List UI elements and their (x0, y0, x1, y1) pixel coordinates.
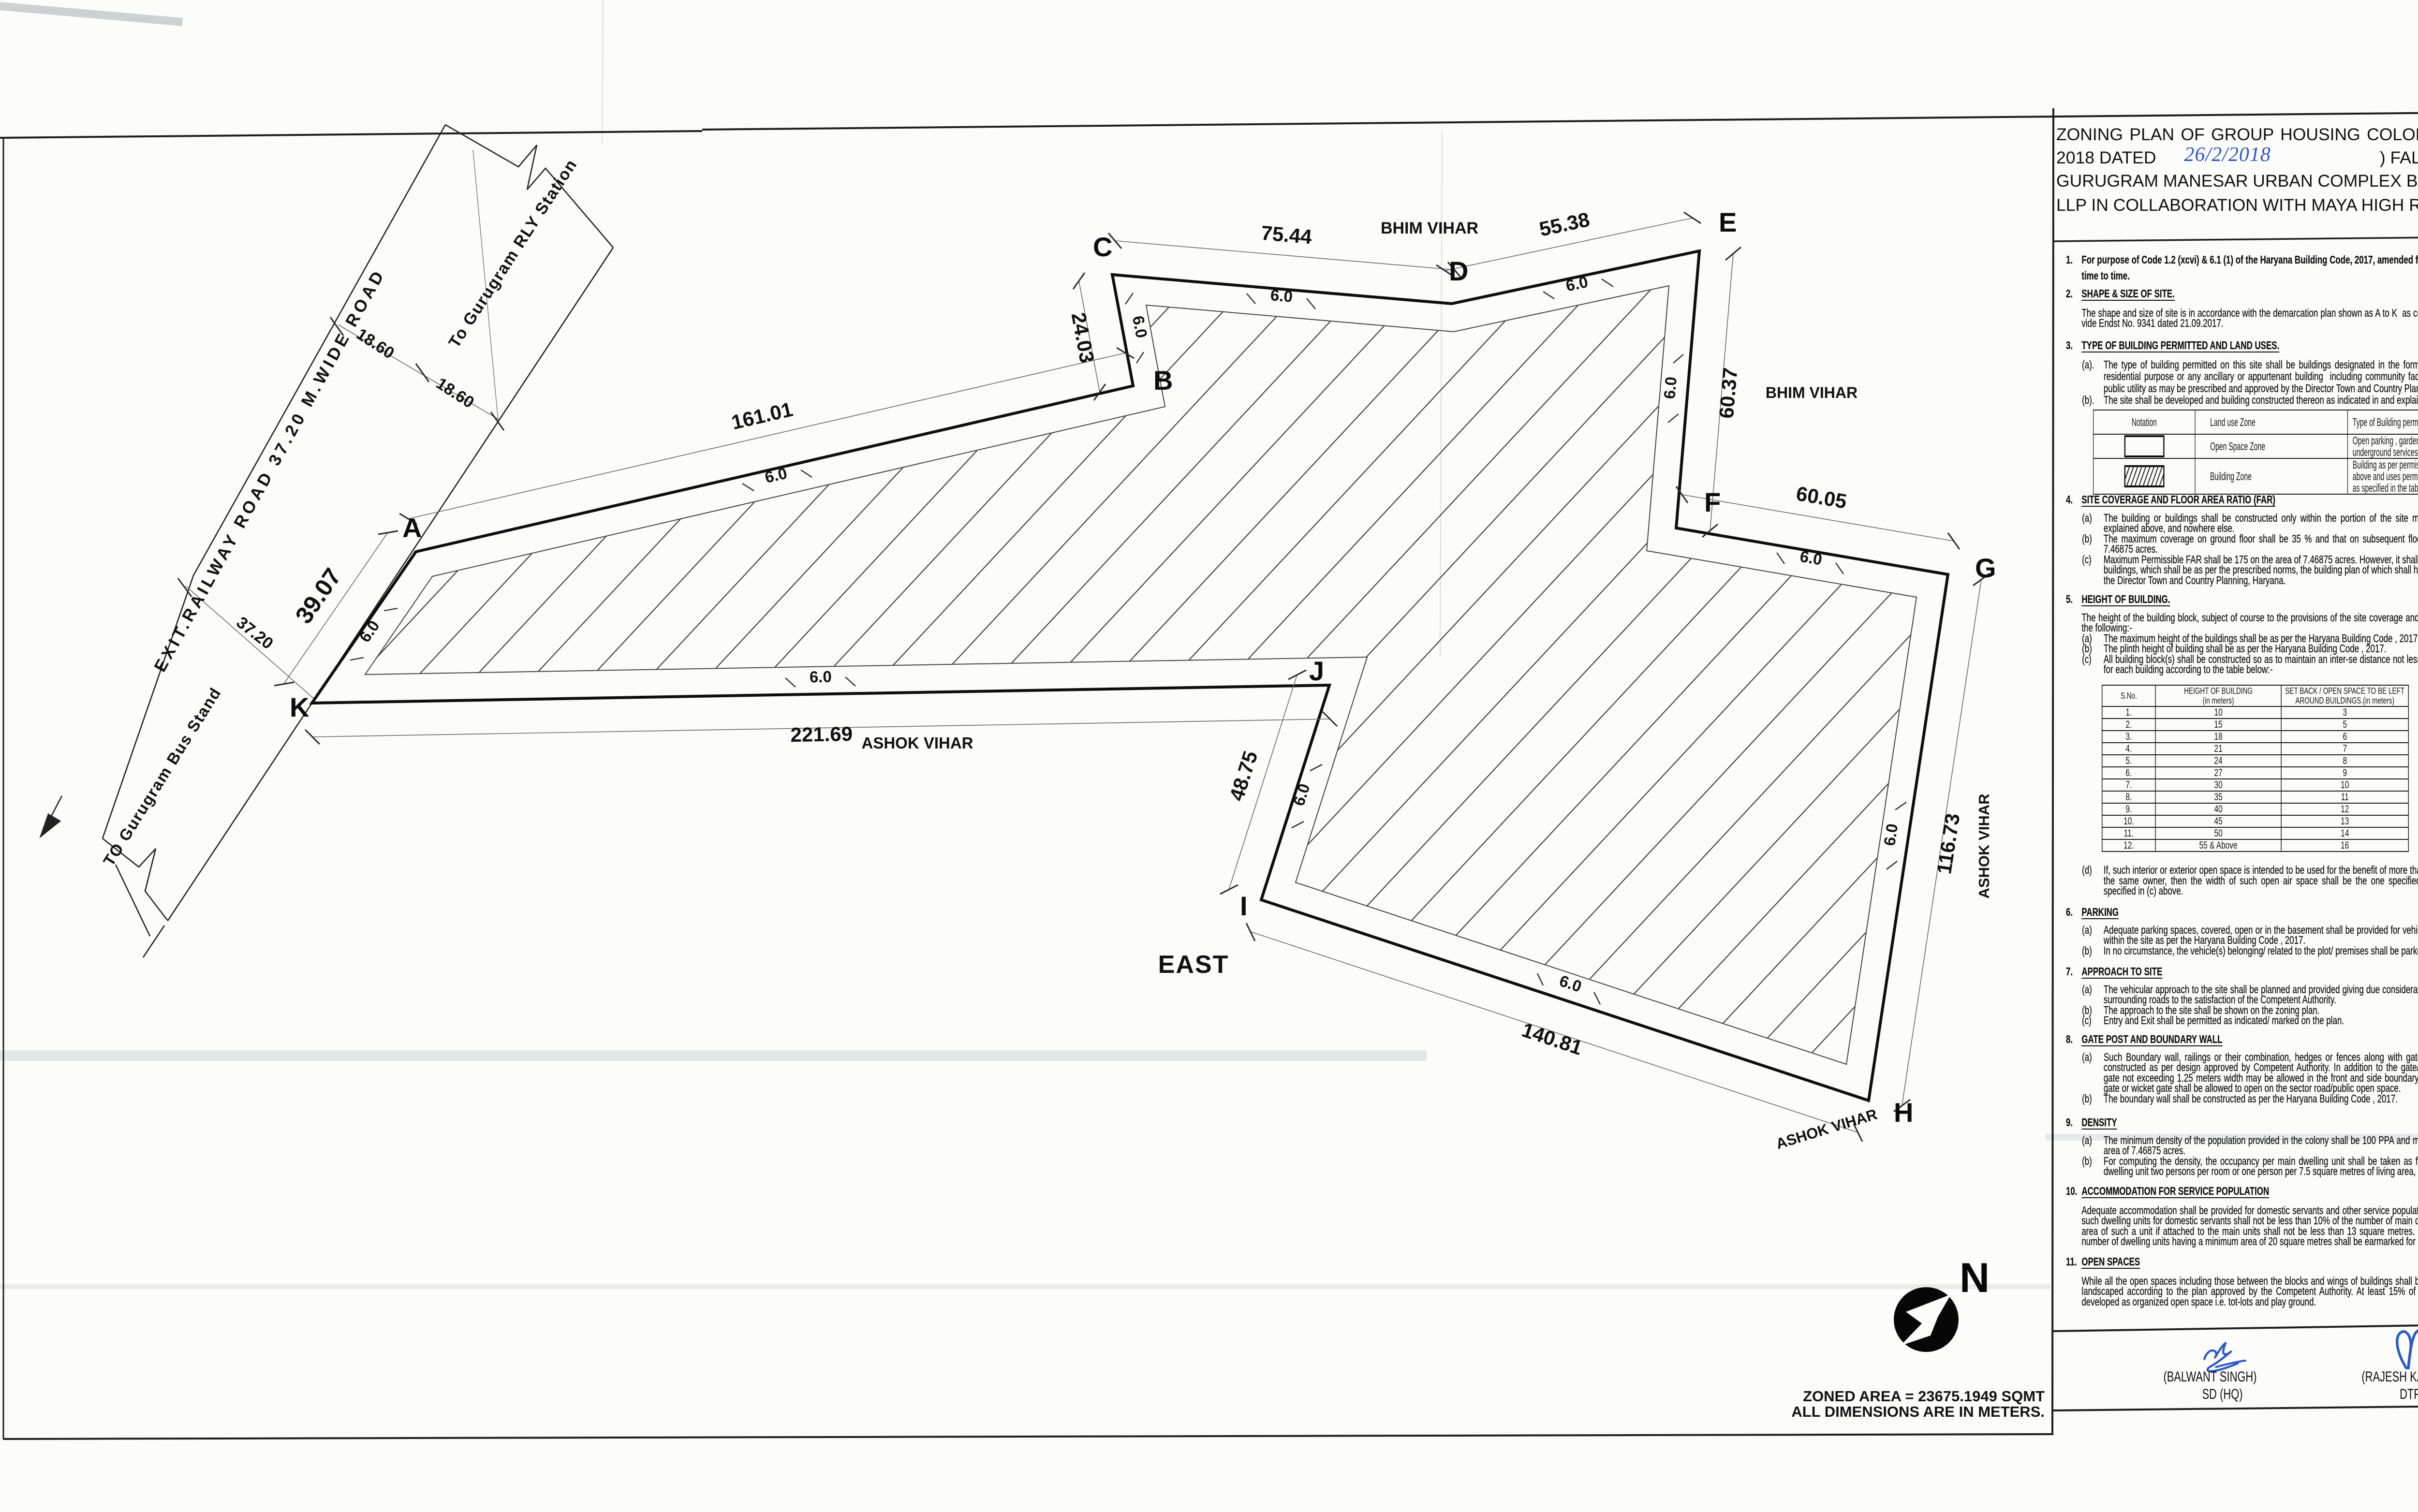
svg-text:6.0: 6.0 (1270, 286, 1294, 306)
svg-text:EXIT.RAILWAY ROAD 37.20 M.WID: EXIT.RAILWAY ROAD 37.20 M.WIDE ROAD (150, 265, 389, 675)
svg-text:A: A (402, 513, 422, 543)
svg-text:G: G (1975, 553, 1996, 583)
svg-text:B: B (1153, 365, 1173, 396)
svg-text:6.0: 6.0 (1129, 314, 1151, 339)
svg-text:6.0: 6.0 (810, 668, 832, 686)
svg-text:ZONED AREA = 23675.1949 SQMT: ZONED AREA = 23675.1949 SQMT (1803, 1388, 2045, 1405)
svg-text:F: F (1704, 487, 1721, 517)
svg-text:ALL DIMENSIONS ARE IN METERS.: ALL DIMENSIONS ARE IN METERS. (1791, 1403, 2045, 1420)
svg-text:60.37: 60.37 (1715, 367, 1742, 419)
svg-text:75.44: 75.44 (1260, 221, 1313, 249)
svg-text:H: H (1894, 1097, 1913, 1128)
svg-text:18.60: 18.60 (433, 374, 477, 412)
svg-text:6.0: 6.0 (763, 464, 789, 486)
svg-text:221.69: 221.69 (790, 722, 853, 746)
svg-text:N: N (1960, 1255, 1990, 1301)
svg-text:ASHOK VIHAR: ASHOK VIHAR (1976, 793, 1992, 898)
svg-text:C: C (1093, 232, 1112, 262)
svg-text:ASHOK VIHAR: ASHOK VIHAR (861, 734, 973, 752)
svg-text:18.60: 18.60 (353, 325, 398, 363)
svg-text:D: D (1449, 256, 1468, 286)
svg-text:6.0: 6.0 (1564, 273, 1590, 295)
svg-text:TO Gurugram Bus Stand: TO Gurugram Bus Stand (100, 684, 224, 869)
svg-text:I: I (1240, 891, 1248, 921)
svg-text:ASHOK VIHAR: ASHOK VIHAR (1774, 1105, 1879, 1152)
svg-text:6.0: 6.0 (355, 617, 383, 646)
svg-text:EAST: EAST (1158, 951, 1229, 979)
svg-text:To Gurugram RLY Station: To Gurugram RLY Station (445, 156, 581, 351)
svg-text:161.01: 161.01 (729, 398, 795, 434)
svg-text:140.81: 140.81 (1519, 1018, 1585, 1059)
svg-text:60.05: 60.05 (1795, 482, 1849, 513)
svg-text:48.75: 48.75 (1225, 748, 1262, 803)
svg-text:BHIM VIHAR: BHIM VIHAR (1381, 219, 1478, 237)
svg-text:39.07: 39.07 (290, 563, 346, 629)
svg-text:24.03: 24.03 (1067, 310, 1099, 365)
svg-text:BHIM VIHAR: BHIM VIHAR (1766, 384, 1858, 401)
svg-text:6.0: 6.0 (1880, 822, 1901, 847)
svg-text:J: J (1309, 656, 1324, 686)
svg-text:6.0: 6.0 (1660, 376, 1680, 400)
svg-text:6.0: 6.0 (1799, 547, 1823, 569)
svg-text:116.73: 116.73 (1932, 812, 1964, 876)
svg-text:6.0: 6.0 (1289, 781, 1313, 808)
svg-text:E: E (1719, 207, 1737, 237)
svg-text:K: K (290, 692, 309, 722)
svg-text:55.38: 55.38 (1537, 208, 1592, 241)
